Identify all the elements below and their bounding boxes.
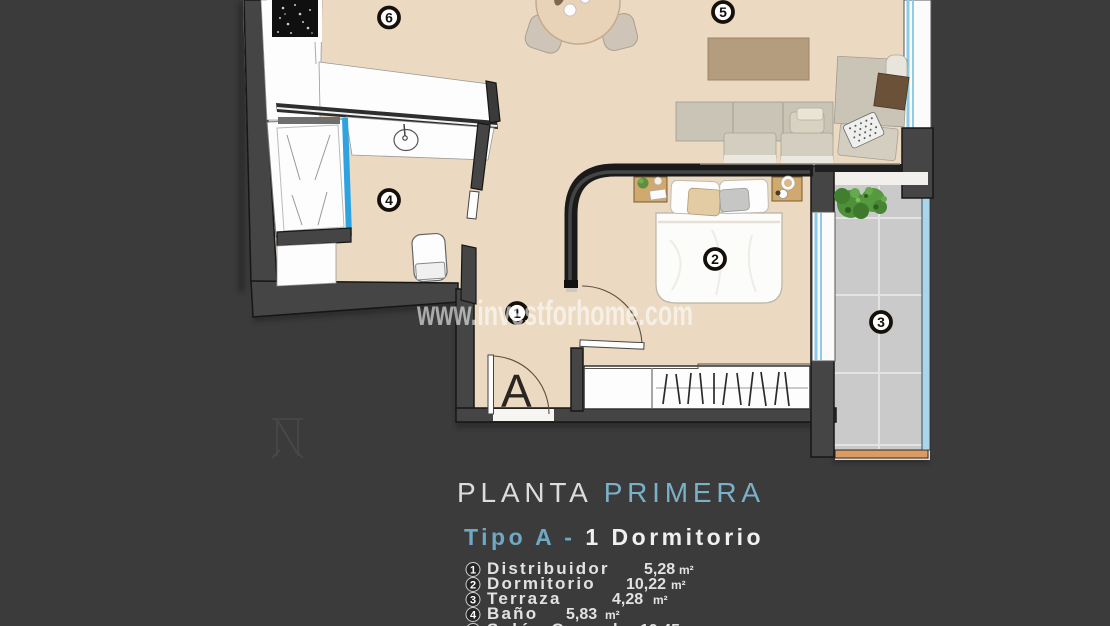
svg-text:2: 2: [711, 251, 719, 267]
svg-text:m²: m²: [605, 608, 620, 622]
svg-text:Tipo A - 1 Dormitorio: Tipo A - 1 Dormitorio: [464, 524, 764, 550]
svg-text:PLANTA PRIMERA: PLANTA PRIMERA: [457, 477, 765, 508]
svg-text:4: 4: [385, 192, 393, 208]
svg-text:2: 2: [470, 580, 476, 592]
svg-text:4: 4: [470, 610, 477, 622]
svg-text:3: 3: [470, 595, 476, 607]
svg-text:5,83: 5,83: [566, 606, 597, 623]
svg-text:A: A: [501, 365, 532, 417]
svg-text:www.investforhome.com: www.investforhome.com: [416, 294, 693, 333]
svg-text:19,45: 19,45: [640, 622, 680, 626]
svg-text:6: 6: [385, 10, 393, 26]
svg-text:m²: m²: [653, 593, 668, 607]
svg-text:1: 1: [470, 565, 476, 577]
svg-text:5: 5: [719, 4, 727, 20]
svg-text:3: 3: [877, 314, 885, 330]
svg-text:m²: m²: [671, 578, 686, 592]
svg-text:4,28: 4,28: [612, 591, 643, 608]
svg-text:m²: m²: [679, 563, 694, 577]
